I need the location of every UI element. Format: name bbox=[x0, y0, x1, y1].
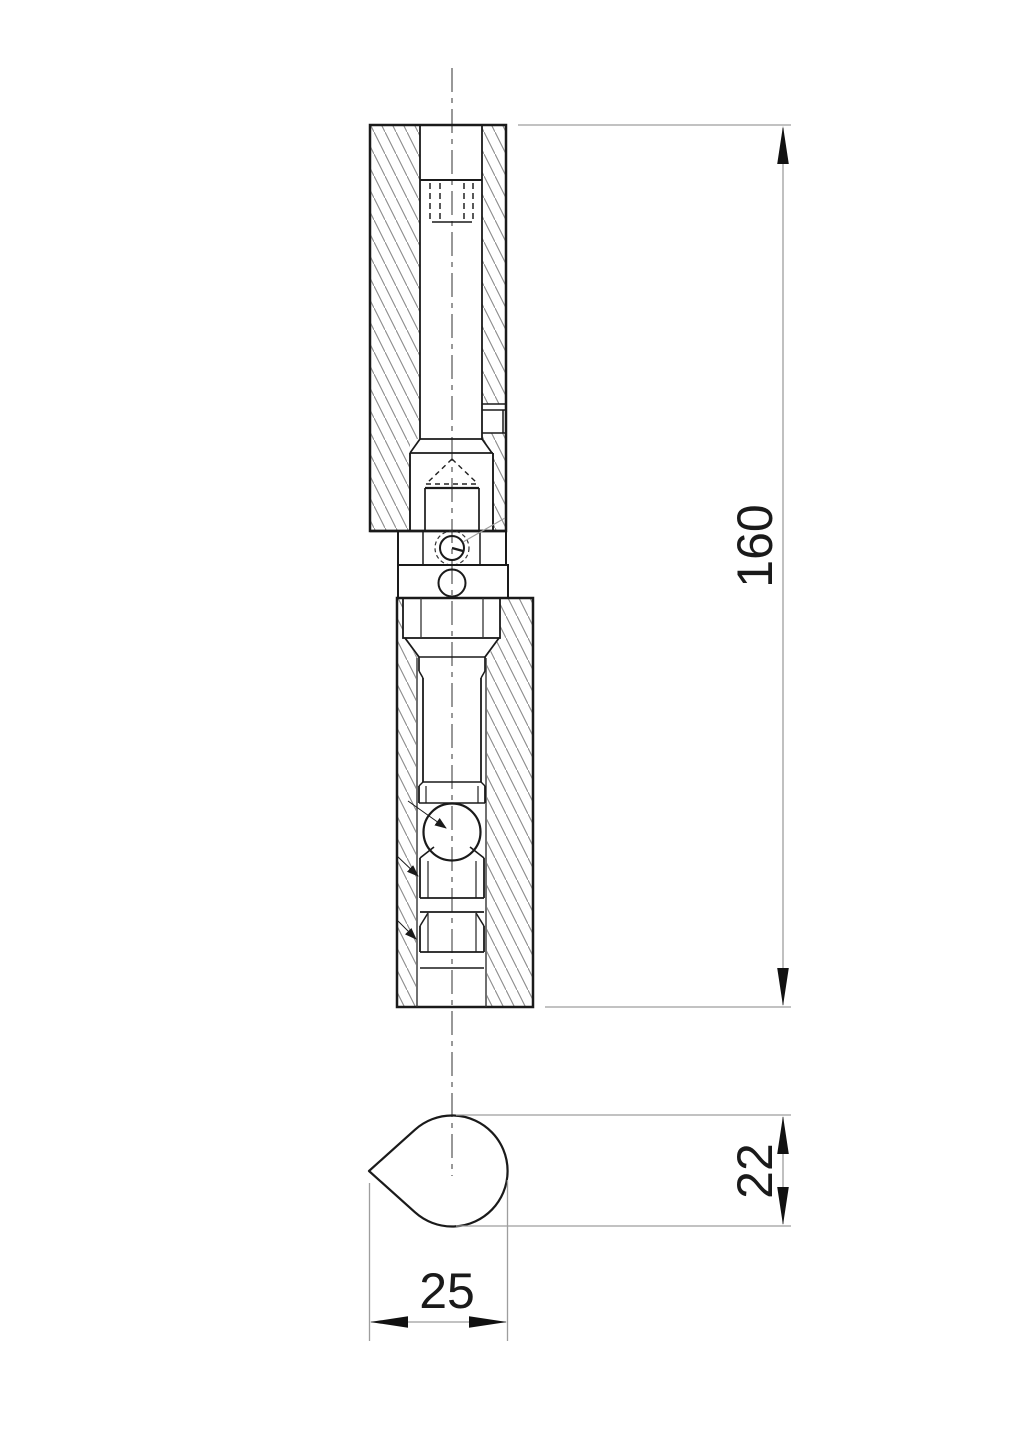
upper-housing-right-wall-hatch-below-port bbox=[482, 433, 506, 531]
arrow-down-icon bbox=[777, 968, 789, 1006]
dimension-160: 160 bbox=[518, 125, 791, 1007]
arrow-left-icon bbox=[370, 1316, 408, 1328]
upper-housing-right-wall-hatch-above-port bbox=[482, 125, 506, 404]
side-port bbox=[482, 404, 506, 433]
dim-tip-width-label: 25 bbox=[419, 1263, 475, 1319]
dim-overall-length-label: 160 bbox=[727, 504, 783, 587]
technical-drawing-canvas: 160 22 25 bbox=[0, 0, 1018, 1440]
sectional-drawing: 160 22 25 bbox=[0, 0, 1018, 1440]
teardrop-fill bbox=[369, 1116, 508, 1227]
dim-tip-height-label: 22 bbox=[727, 1143, 783, 1199]
arrow-up-icon bbox=[777, 126, 789, 164]
upper-housing-left-wall-hatch bbox=[370, 125, 420, 531]
